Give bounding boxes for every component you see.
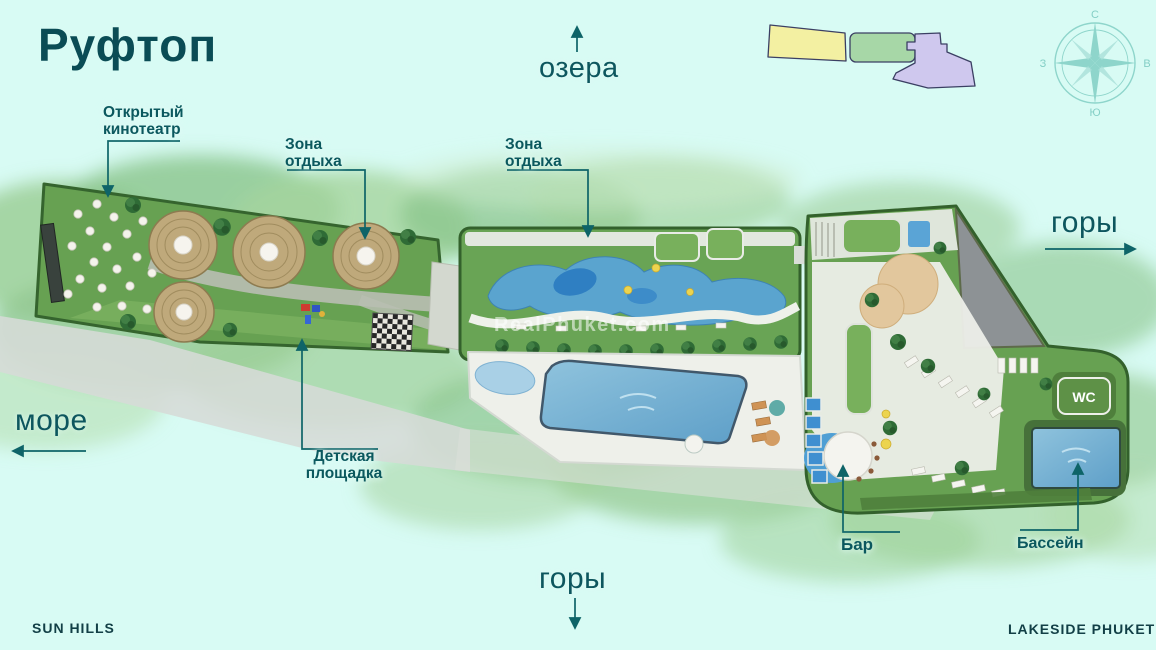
- label-playground: Детская площадка: [304, 448, 384, 483]
- direction-mountains-east: горы: [1051, 206, 1118, 240]
- tree-icon: [865, 293, 879, 307]
- compass-west-letter: З: [1040, 58, 1047, 70]
- label-rest-zone-1: Зона отдыха: [285, 136, 342, 171]
- brand-sun-hills: SUN HILLS: [32, 620, 115, 636]
- tree-icon: [120, 314, 136, 330]
- label-open-cinema: Открытый кинотеатр: [103, 104, 183, 139]
- green-pavilion: [843, 219, 901, 253]
- swimming-pool: [1032, 428, 1120, 488]
- green-pavilion: [707, 229, 743, 259]
- tree-icon: [400, 229, 416, 245]
- tree-icon: [934, 242, 947, 255]
- rooftop-masterplan-page: WC: [0, 0, 1156, 650]
- tree-icon: [213, 218, 231, 236]
- plunge-pool: [908, 221, 930, 247]
- label-bar: Бар: [841, 535, 873, 554]
- watermark: RealPhuket.com: [494, 314, 671, 337]
- compass-south-letter: Ю: [1089, 107, 1100, 119]
- main-lap-pool: [541, 361, 746, 443]
- compass-rose-icon: С В Ю З: [1040, 9, 1151, 119]
- compass-east-letter: В: [1143, 58, 1150, 70]
- tree-icon: [921, 359, 935, 373]
- tree-icon: [223, 323, 237, 337]
- jacuzzi: [685, 435, 703, 453]
- green-pavilion: [655, 233, 699, 261]
- middle-roof: [460, 228, 800, 360]
- compass-north-letter: С: [1091, 9, 1099, 21]
- tree-icon: [125, 197, 141, 213]
- round-bar: [824, 432, 872, 480]
- tree-icon: [955, 461, 969, 475]
- giant-chessboard: [371, 313, 413, 351]
- tree-icon: [1040, 378, 1053, 391]
- building-footprint-minimap: [768, 25, 975, 88]
- direction-sea: море: [15, 404, 88, 438]
- page-title: Руфтоп: [38, 18, 217, 72]
- tree-icon: [978, 388, 991, 401]
- sand-lounge-circle: [860, 284, 904, 328]
- label-rest-zone-2: Зона отдыха: [505, 136, 562, 171]
- tree-icon: [312, 230, 328, 246]
- direction-lakes: озера: [539, 52, 619, 85]
- green-pavilion: [846, 324, 872, 414]
- label-pool: Бассейн: [1017, 535, 1084, 553]
- tree-icon: [890, 334, 906, 350]
- wc-label: WC: [1072, 389, 1095, 405]
- minimap-green-wing: [850, 33, 915, 62]
- brand-lakeside-phuket: LAKESIDE PHUKET: [1008, 621, 1155, 637]
- direction-mountains-south: горы: [539, 562, 606, 596]
- minimap-yellow-wing: [768, 25, 846, 61]
- tree-icon: [883, 421, 897, 435]
